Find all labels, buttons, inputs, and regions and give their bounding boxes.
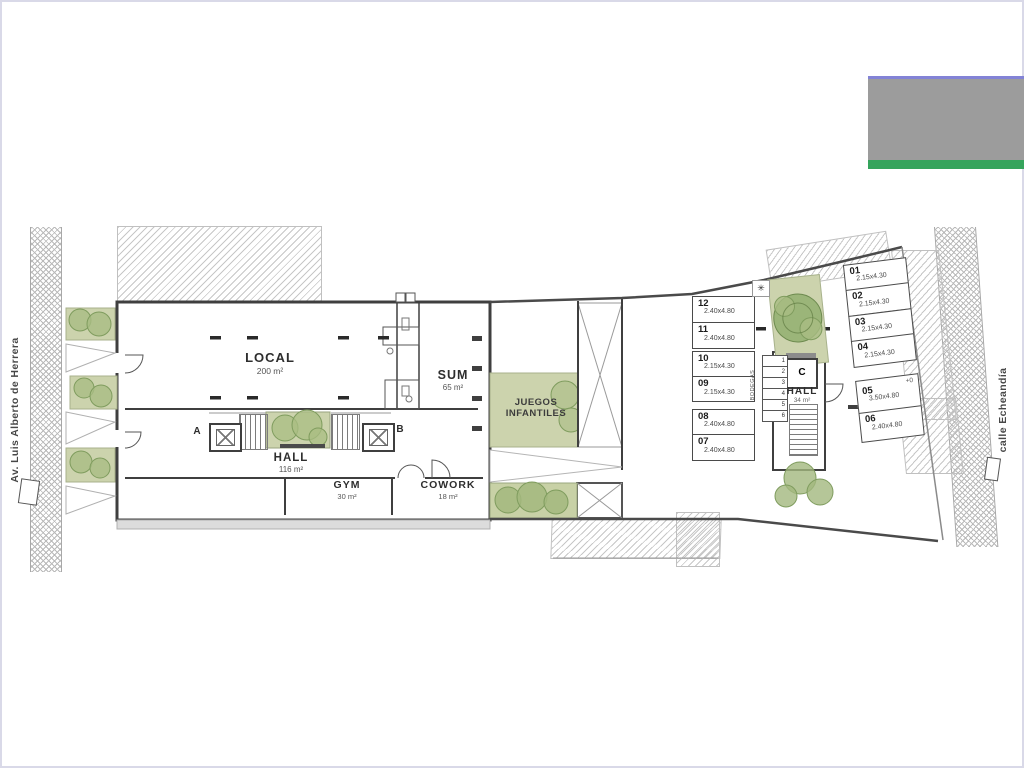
storage-label: BODEGAS: [750, 355, 756, 415]
room-hall-main-area: 116 m²: [251, 466, 331, 475]
street-trees-left: [66, 308, 117, 482]
room-sum-label: SUM: [413, 369, 493, 383]
room-hall-main-label: HALL: [251, 452, 331, 465]
street-label-left: Av. Luis Alberto de Herrera: [9, 325, 23, 495]
courtyard-garden: [266, 410, 330, 448]
floor-plan-page: C 12 2.40x4.80 11 2.40x4.80 10 2.15x4.30…: [0, 0, 1024, 768]
elevator-b-label: B: [393, 424, 407, 435]
plot-bottom-boundary: [490, 519, 938, 541]
room-gym-area: 30 m²: [307, 493, 387, 501]
room-hall-right-label: HALL: [772, 386, 832, 397]
room-local-label: LOCAL: [220, 351, 320, 365]
playground-label-line1: JUEGOS: [491, 398, 581, 408]
light-icon: ✳: [752, 280, 770, 297]
plot-top-boundary: [490, 247, 902, 302]
parking-space-11: 11 2.40x4.80: [692, 322, 755, 349]
vehicle-ramp: [578, 298, 622, 470]
stairs-hall-right-icon: [789, 404, 818, 456]
elevator-c-box: C: [786, 358, 818, 389]
parking-column-left: 12 2.40x4.80 11 2.40x4.80 10 2.15x4.30 0…: [692, 297, 755, 461]
room-gym-label: GYM: [307, 480, 387, 492]
ramp-x-box: [577, 483, 622, 518]
ramp-wedge: [490, 450, 622, 482]
playground-label-line2: INFANTILES: [491, 409, 581, 419]
sidewalk-ramps-left: [66, 344, 115, 514]
parking-space-10: 10 2.15x4.30: [692, 351, 755, 378]
elevator-car-icon: [216, 429, 235, 446]
storage-unit: 6: [762, 410, 788, 422]
stairs-right-icon: [331, 414, 360, 450]
elevator-c-shaft: [786, 353, 816, 358]
room-sum-area: 65 m²: [413, 384, 493, 393]
parking-space-08: 08 2.40x4.80: [692, 409, 755, 436]
stairs-left-icon: [239, 414, 268, 450]
elevator-c-label: C: [798, 367, 805, 378]
room-cowork-area: 18 m²: [403, 493, 493, 501]
parking-space-12: 12 2.40x4.80: [692, 296, 755, 324]
parking-space-07: 07 2.40x4.80: [692, 434, 755, 461]
parking-space-09: 09 2.15x4.30: [692, 376, 755, 402]
palm-trees-strip: [490, 482, 577, 518]
logo-banner: [868, 76, 1024, 163]
room-hall-right-area: 34 m²: [772, 397, 832, 404]
elevator-b-box: [362, 423, 395, 452]
room-local-area: 200 m²: [220, 367, 320, 376]
room-cowork-label: COWORK: [403, 480, 493, 492]
elevator-a-label: A: [190, 426, 204, 437]
elevator-car-icon: [369, 429, 388, 446]
elevator-a-box: [209, 423, 242, 452]
level-marker: +0: [905, 376, 913, 384]
logo-banner-green-bar: [868, 160, 1024, 169]
street-label-right: calle Echeandía: [997, 355, 1011, 465]
